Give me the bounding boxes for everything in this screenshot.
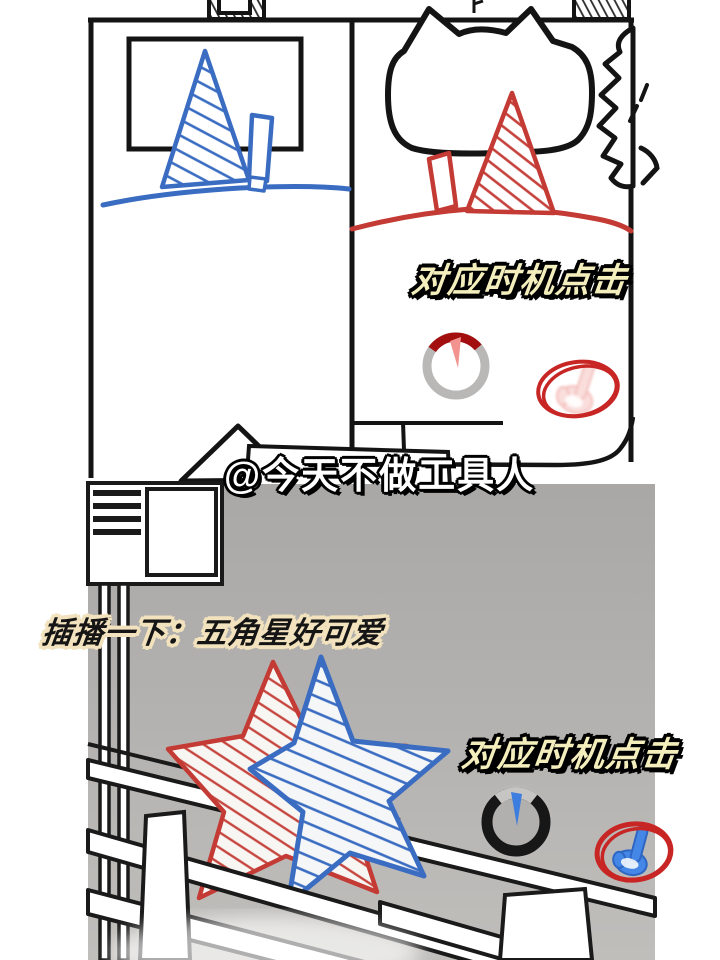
- cat-antenna: [474, 0, 483, 13]
- top-panel: [88, 0, 657, 487]
- watermark: @今天不做工具人: [224, 457, 535, 494]
- red-pillar-icon: [429, 153, 456, 211]
- timer-gauge-blue: [479, 785, 553, 859]
- chimney-left: [209, 0, 264, 19]
- bottom-panel: [88, 483, 674, 960]
- annotation-bottom: 对应时机点击: [460, 738, 680, 772]
- cat-cloud-icon: [388, 9, 592, 153]
- timer-gauge-red: [427, 337, 485, 395]
- blue-pillar-icon: [249, 115, 272, 191]
- scene-red-sketch: [352, 0, 631, 231]
- chimney-right: [574, 0, 629, 19]
- comic-page: 对应时机点击 插播一下：五角星好可爱 对应时机点击 @今天不做工具人: [0, 0, 720, 960]
- scene-blue-sketch: [103, 39, 349, 205]
- caption-interlude: 插播一下：五角星好可爱: [40, 619, 385, 649]
- railing-post: [500, 889, 592, 960]
- blue-ground-line: [103, 187, 349, 205]
- annotation-top: 对应时机点击: [410, 264, 630, 298]
- click-indicator-top[interactable]: [535, 355, 622, 423]
- bush-icon: [599, 28, 657, 187]
